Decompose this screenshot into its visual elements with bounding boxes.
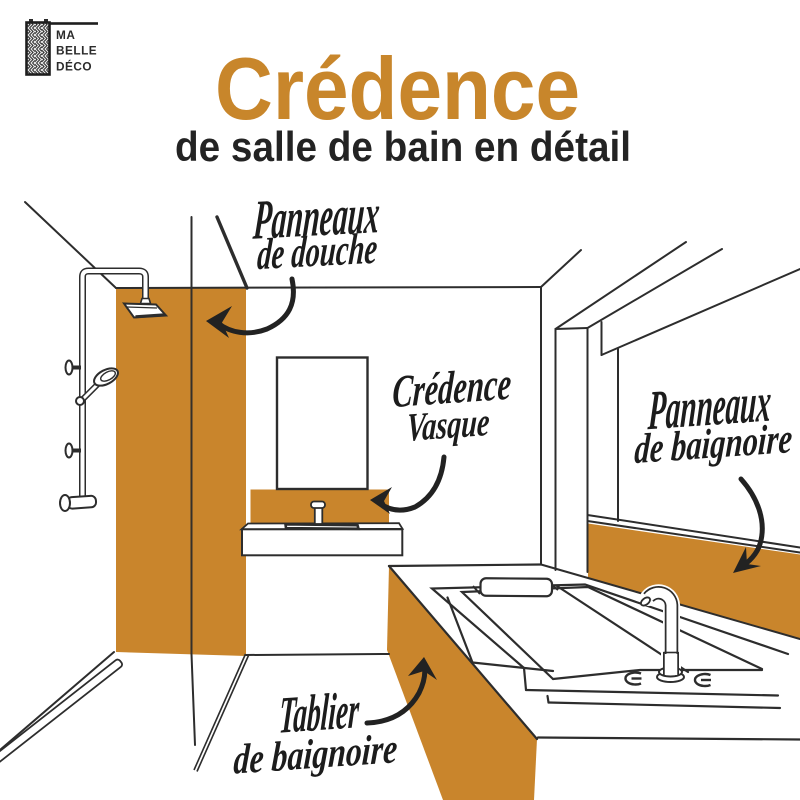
svg-text:Vasque: Vasque [406, 399, 491, 450]
svg-text:de douche: de douche [256, 224, 379, 279]
svg-text:BELLE: BELLE [56, 44, 97, 58]
svg-text:de salle de bain en détail: de salle de bain en détail [175, 123, 631, 170]
svg-text:DÉCO: DÉCO [56, 59, 92, 73]
svg-text:MA: MA [56, 28, 75, 42]
